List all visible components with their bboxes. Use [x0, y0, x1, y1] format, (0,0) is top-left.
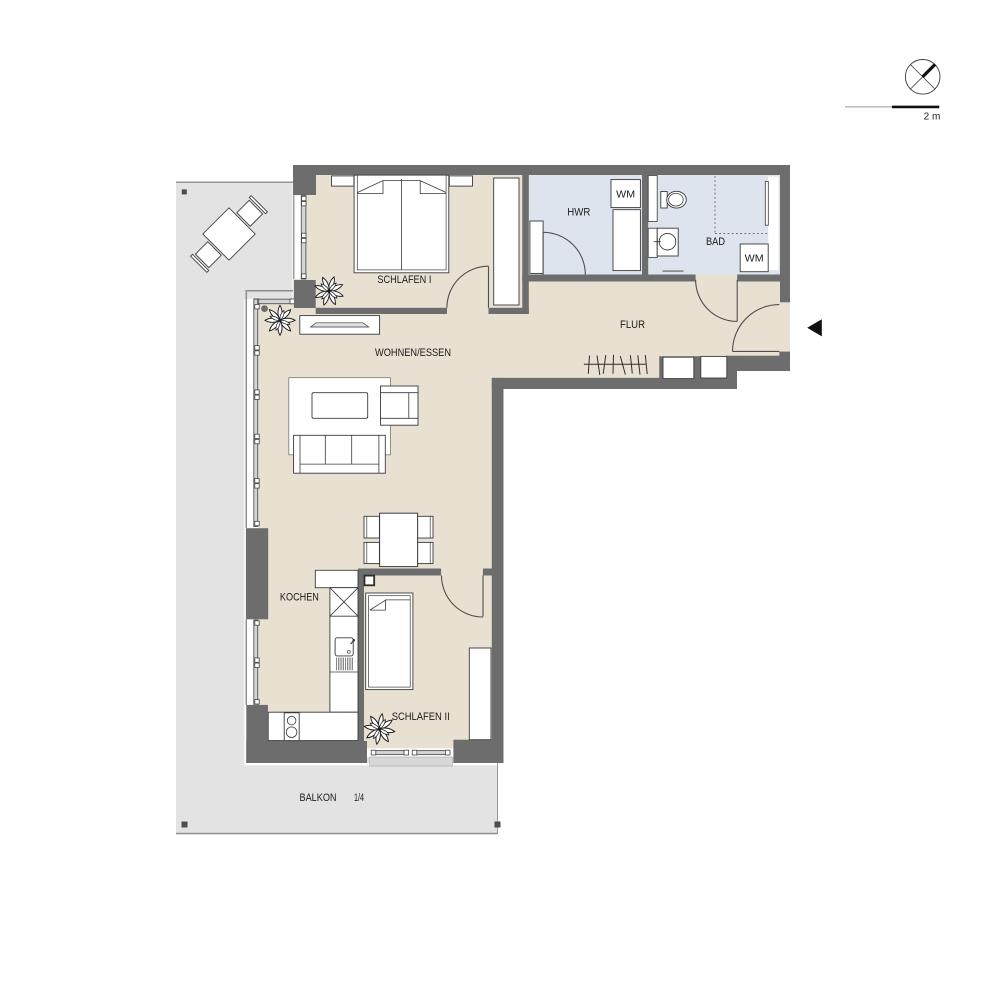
svg-text:SCHLAFEN II: SCHLAFEN II [392, 711, 450, 723]
svg-text:SCHLAFEN I: SCHLAFEN I [377, 274, 431, 286]
svg-text:BALKON: BALKON [300, 792, 337, 804]
svg-text:WOHNEN/ESSEN: WOHNEN/ESSEN [375, 347, 451, 359]
svg-text:1/4: 1/4 [354, 792, 364, 804]
svg-text:HWR: HWR [567, 207, 590, 219]
svg-text:KOCHEN: KOCHEN [280, 592, 319, 604]
svg-text:FLUR: FLUR [620, 319, 645, 331]
svg-text:2 m: 2 m [924, 112, 941, 123]
svg-text:WM: WM [745, 254, 764, 265]
svg-text:WM: WM [616, 190, 635, 201]
svg-text:BAD: BAD [706, 236, 725, 248]
